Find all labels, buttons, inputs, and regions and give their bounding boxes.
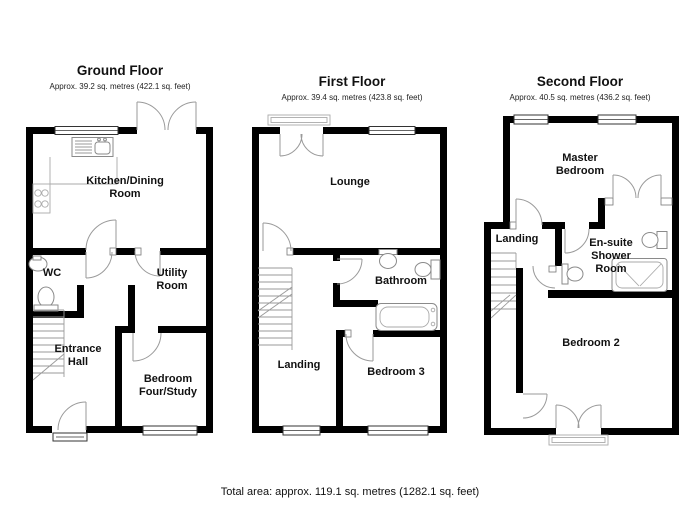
room-label-bed4-line1: Bedroom [144, 373, 193, 385]
room-label-hall-line2: Hall [68, 356, 88, 368]
ensuite-door [565, 229, 589, 253]
room-label-landing-first: Landing [278, 359, 321, 371]
room-label-bed3: Bedroom 3 [367, 366, 424, 378]
bedroom-four-door [133, 333, 161, 361]
room-label-ensuite-line1: En-suite [589, 237, 632, 249]
master-bedroom-door [516, 199, 542, 225]
room-label-landing-second: Landing [496, 233, 539, 245]
ensuite-basin [642, 232, 667, 249]
room-label-utility-line1: Utility [157, 267, 188, 279]
landing-window [283, 426, 320, 435]
lounge-french-doors [280, 134, 323, 156]
bathroom-door [337, 259, 362, 284]
kitchen-hob [35, 190, 48, 207]
master-window-right [598, 115, 636, 124]
wc-door [86, 252, 112, 278]
bath-tub [376, 304, 437, 331]
ground-floor-plan: Kitchen/Dining Room WC Utility Room Entr… [26, 102, 213, 441]
bedroom-three-door [346, 334, 373, 361]
floorplan-page: Ground Floor Approx. 39.2 sq. metres (42… [0, 0, 700, 509]
lounge-door [263, 223, 291, 251]
room-label-kitchen-line1: Kitchen/Dining [86, 175, 164, 187]
bathroom-basin [379, 250, 397, 269]
room-label-kitchen-line2: Room [109, 188, 140, 200]
lounge-window [369, 127, 415, 135]
second-floor-plan: Master Bedroom Landing En-suite Shower R… [484, 115, 679, 445]
room-label-lounge: Lounge [330, 176, 370, 188]
room-label-master-line1: Master [562, 152, 598, 164]
first-staircase [258, 268, 292, 350]
second-staircase [491, 253, 516, 318]
kitchen-door [86, 220, 116, 250]
ensuite-toilet [562, 264, 583, 284]
room-label-master-line2: Bedroom [556, 165, 605, 177]
garden-french-doors [137, 102, 196, 130]
bedroom-two-door [523, 394, 547, 418]
balcony-rail [268, 115, 330, 125]
room-label-bathroom: Bathroom [375, 275, 427, 287]
total-area-text: Total area: approx. 119.1 sq. metres (12… [0, 486, 700, 498]
room-label-ensuite-line2: Shower [591, 250, 631, 262]
bedroom-three-window [368, 426, 428, 435]
room-label-bed4-line2: Four/Study [139, 386, 198, 398]
floorplan-drawing: Kitchen/Dining Room WC Utility Room Entr… [0, 0, 700, 509]
kitchen-window [55, 127, 118, 135]
bedroom-four-window [143, 426, 197, 435]
room-label-hall-line1: Entrance [54, 343, 101, 355]
first-floor-plan: Lounge Bathroom Landing Bedroom 3 [252, 115, 447, 435]
bedroom-two-french-doors [549, 405, 608, 445]
master-window-left [514, 115, 548, 124]
room-label-bed2: Bedroom 2 [562, 337, 619, 349]
wc-toilet [34, 287, 58, 311]
room-label-wc: WC [43, 267, 61, 279]
room-label-utility-line2: Room [156, 280, 187, 292]
kitchen-sink [72, 138, 113, 157]
master-double-doors [613, 175, 661, 198]
front-door [53, 402, 87, 441]
room-label-ensuite-line3: Room [595, 263, 626, 275]
